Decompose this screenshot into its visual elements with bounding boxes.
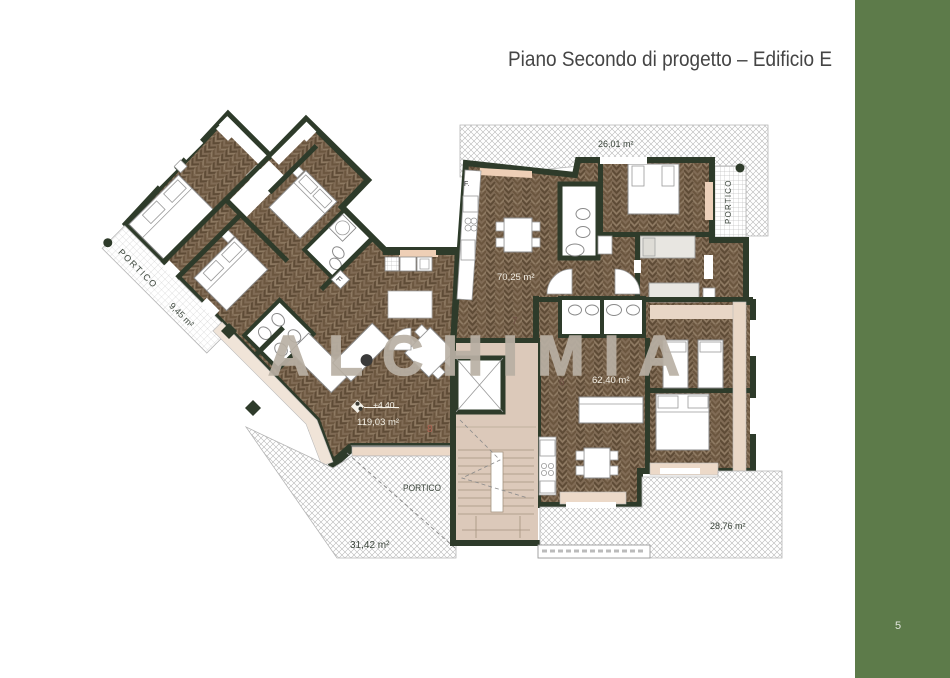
svg-text:28,76 m²: 28,76 m² bbox=[710, 521, 746, 531]
svg-text:5: 5 bbox=[895, 620, 901, 632]
svg-text:ALCHIMIA: ALCHIMIA bbox=[268, 324, 699, 388]
svg-text:PORTICO: PORTICO bbox=[403, 483, 441, 494]
svg-text:26,01 m²: 26,01 m² bbox=[598, 139, 634, 149]
svg-text:F.: F. bbox=[464, 181, 470, 188]
svg-text:119,03 m²: 119,03 m² bbox=[357, 417, 399, 428]
svg-text:31,42 m²: 31,42 m² bbox=[350, 540, 390, 551]
svg-text:8: 8 bbox=[427, 424, 433, 435]
svg-text:70,25 m²: 70,25 m² bbox=[497, 272, 535, 283]
svg-text:PORTICO: PORTICO bbox=[724, 179, 733, 224]
svg-text:+4.40: +4.40 bbox=[373, 400, 395, 410]
svg-text:Piano Secondo di progetto – Ed: Piano Secondo di progetto – Edificio E bbox=[508, 48, 832, 71]
